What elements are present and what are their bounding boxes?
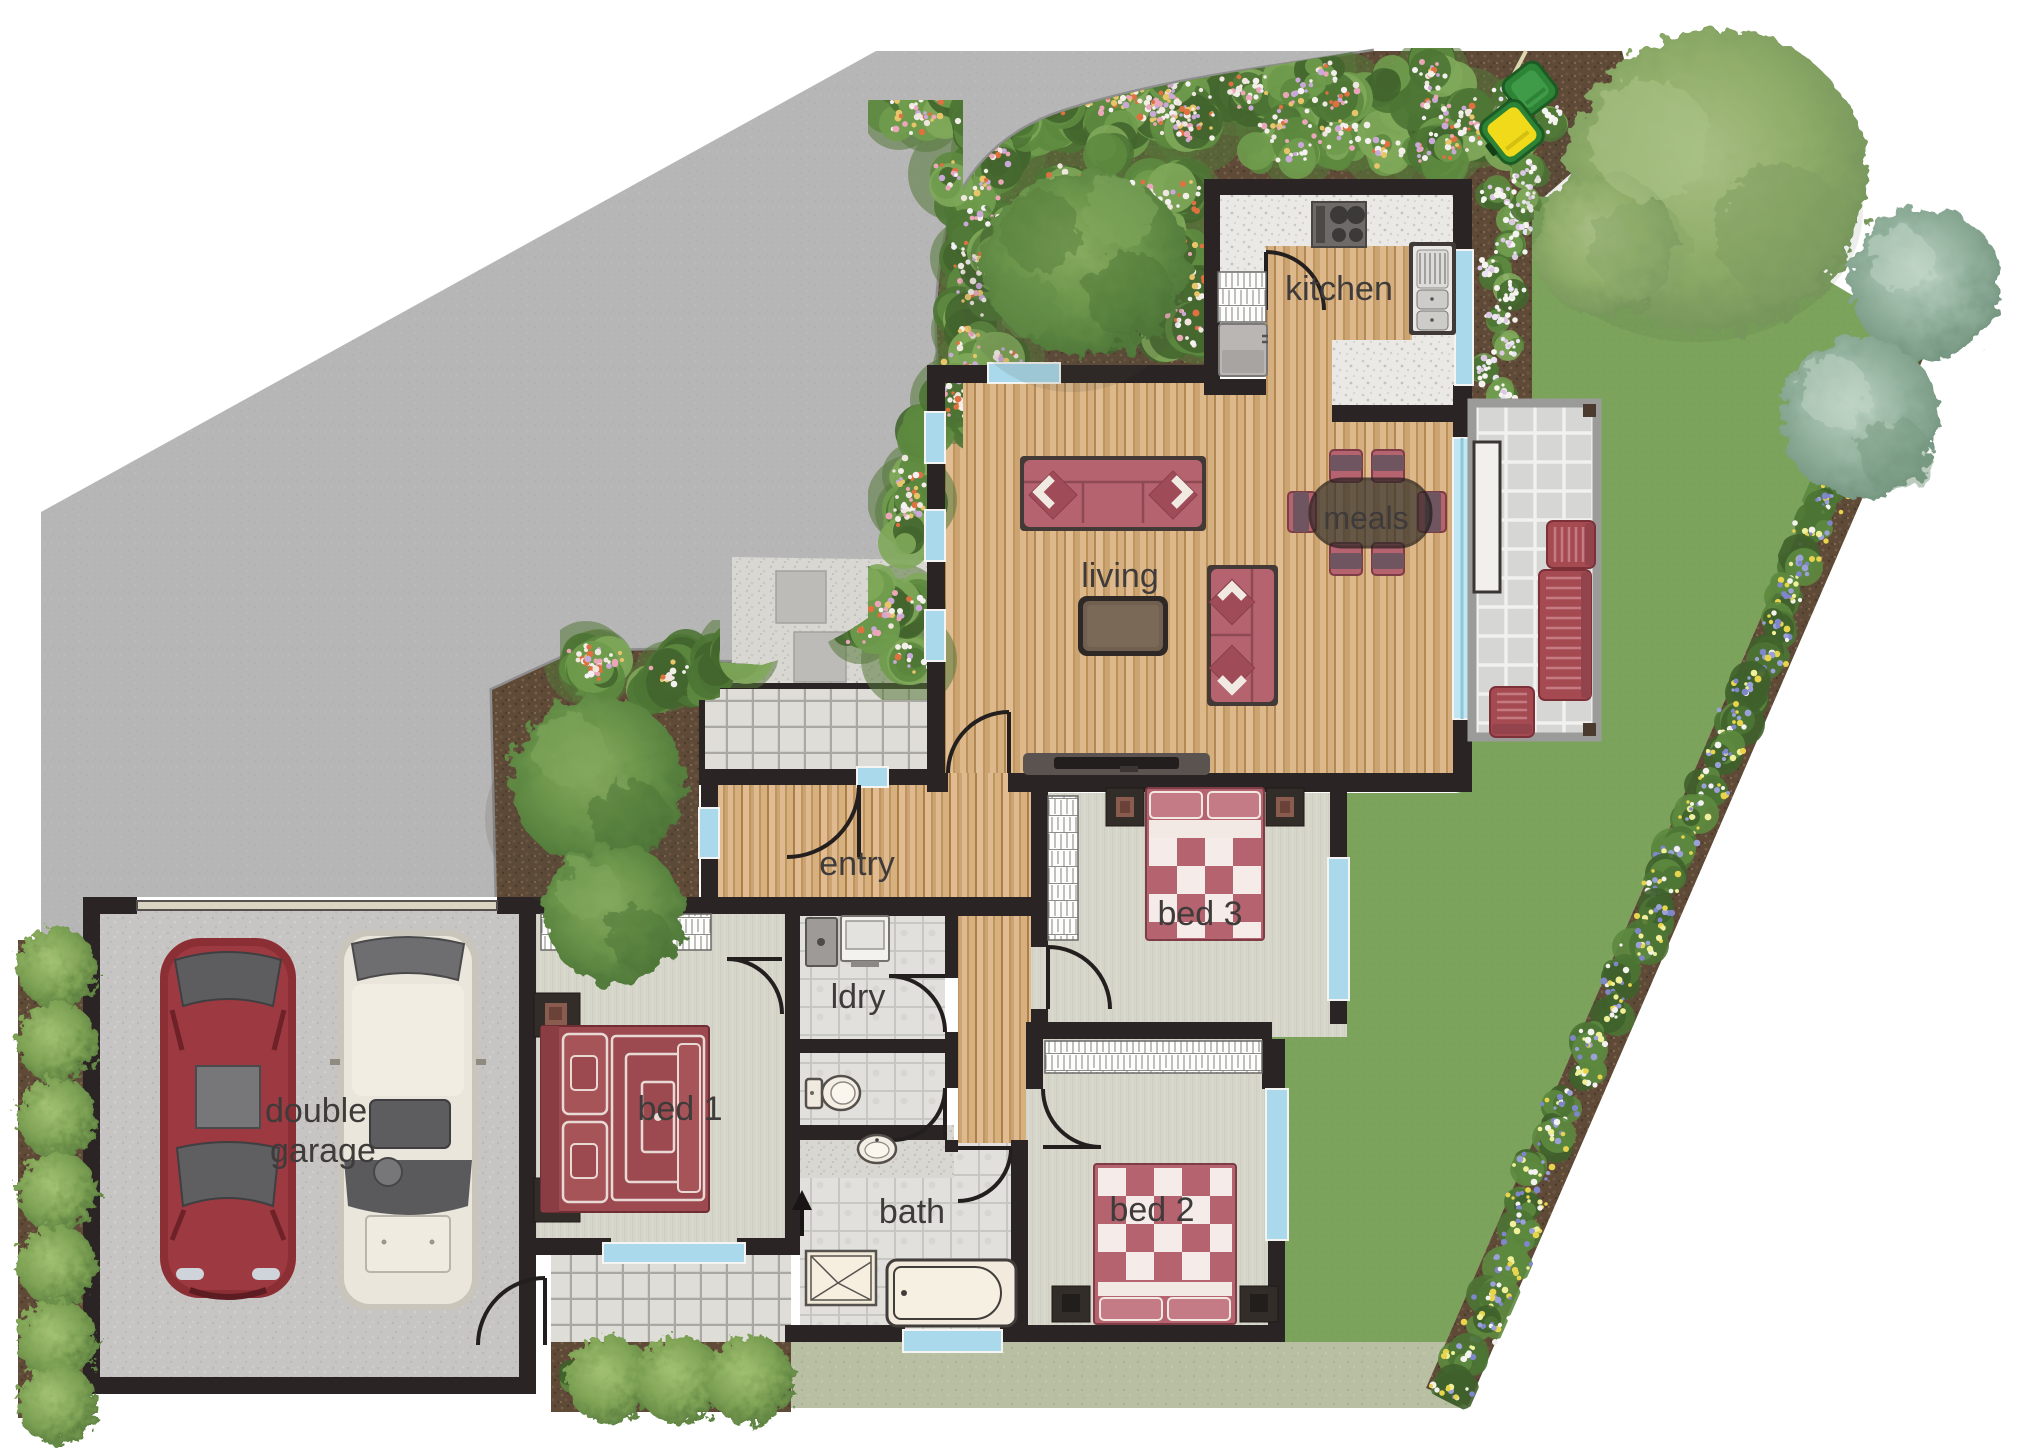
svg-text:bed 2: bed 2 [1109, 1191, 1194, 1229]
svg-text:bed 1: bed 1 [637, 1090, 722, 1128]
svg-text:bed 3: bed 3 [1157, 895, 1242, 933]
svg-text:bath: bath [879, 1193, 945, 1231]
svg-text:entry: entry [819, 845, 895, 883]
svg-text:double: double [265, 1092, 367, 1130]
svg-text:living: living [1081, 557, 1158, 595]
svg-text:garage: garage [270, 1132, 376, 1170]
svg-text:meals: meals [1323, 500, 1408, 536]
svg-text:ldry: ldry [831, 978, 886, 1016]
svg-text:kitchen: kitchen [1285, 270, 1393, 308]
